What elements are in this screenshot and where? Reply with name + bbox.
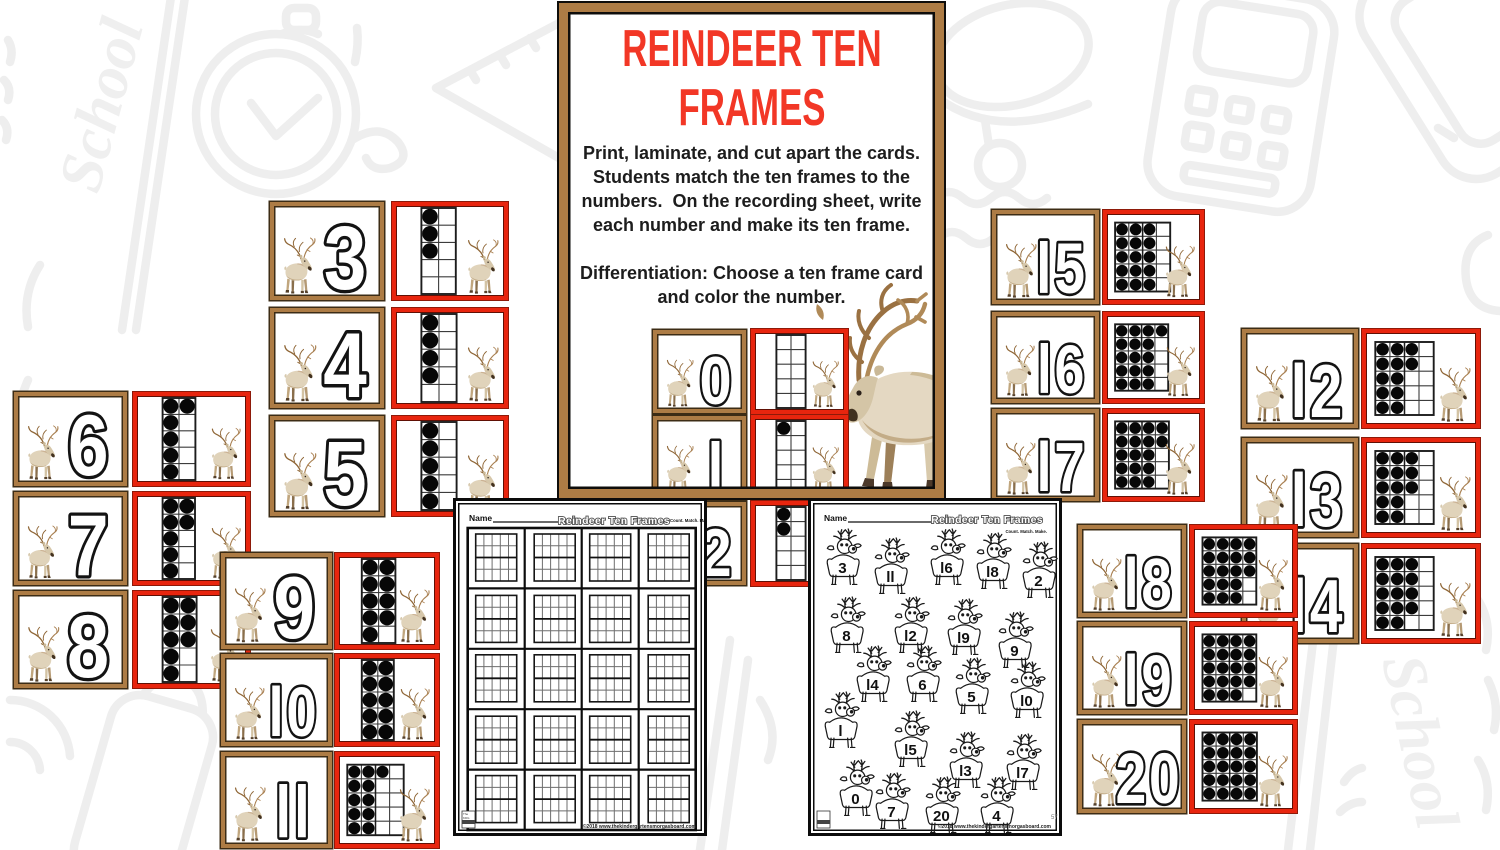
svg-text:Count. Match. Make.: Count. Match. Make. [1005, 529, 1047, 534]
svg-text:Reindeer Ten Frames: Reindeer Ten Frames [558, 515, 670, 527]
svg-text:School: School [1368, 649, 1471, 836]
svg-text:8: 8 [842, 628, 850, 645]
svg-text:Name: Name [824, 513, 847, 523]
svg-text:l2: l2 [904, 628, 917, 645]
svg-text:l0: l0 [1020, 693, 1033, 710]
svg-text:ll: ll [275, 771, 312, 850]
svg-text:0: 0 [699, 344, 734, 419]
svg-text:l6: l6 [940, 560, 953, 577]
svg-text:57: 57 [1051, 815, 1058, 821]
svg-text:5: 5 [967, 689, 975, 706]
svg-text:l6: l6 [1037, 332, 1087, 409]
svg-text:Count. Match. Make.: Count. Match. Make. [670, 518, 704, 523]
svg-text:ll: ll [886, 569, 894, 586]
svg-text:6: 6 [68, 397, 112, 493]
svg-text:l5: l5 [1036, 229, 1088, 308]
svg-text:7: 7 [68, 497, 112, 593]
svg-text:Reindeer Ten Frames: Reindeer Ten Frames [931, 514, 1043, 526]
svg-text:4: 4 [992, 808, 1001, 825]
svg-text:l3: l3 [959, 763, 972, 780]
svg-text:l2: l2 [1291, 350, 1346, 434]
svg-text:l8: l8 [986, 564, 999, 581]
svg-text:KDG: KDG [463, 816, 470, 820]
svg-text:l7: l7 [1016, 765, 1029, 782]
svg-text:l4: l4 [1291, 565, 1346, 649]
svg-text:20: 20 [933, 808, 950, 825]
svg-text:5: 5 [323, 423, 370, 525]
svg-text:4: 4 [323, 315, 370, 417]
svg-text:l9: l9 [957, 630, 970, 647]
svg-text:9: 9 [273, 559, 318, 657]
svg-text:l8: l8 [1124, 545, 1175, 623]
svg-text:©2018 www.thekindergartensmor: ©2018 www.thekindergartensmorgasboard.co… [938, 823, 1052, 830]
svg-text:l3: l3 [1291, 459, 1346, 543]
svg-text:8: 8 [67, 596, 113, 696]
svg-text:l0: l0 [269, 674, 320, 752]
svg-text:l: l [838, 723, 842, 740]
svg-text:0: 0 [851, 791, 859, 808]
svg-text:6: 6 [918, 677, 926, 694]
svg-text:School: School [46, 11, 157, 199]
svg-text:©2018 www.thekindergartensmor: ©2018 www.thekindergartensmorgasboard.co… [583, 823, 697, 830]
svg-text:9: 9 [1010, 643, 1018, 660]
svg-text:l: l [708, 430, 727, 505]
svg-text:l9: l9 [1124, 642, 1175, 720]
svg-text:l5: l5 [904, 742, 917, 759]
svg-text:20: 20 [1115, 739, 1182, 818]
svg-text:l4: l4 [866, 677, 879, 694]
svg-text:2: 2 [1034, 573, 1042, 590]
svg-text:3: 3 [324, 207, 370, 308]
svg-text:7: 7 [887, 804, 895, 821]
svg-text:l7: l7 [1037, 429, 1088, 507]
svg-text:3: 3 [838, 560, 846, 577]
svg-text:Name: Name [469, 513, 492, 523]
